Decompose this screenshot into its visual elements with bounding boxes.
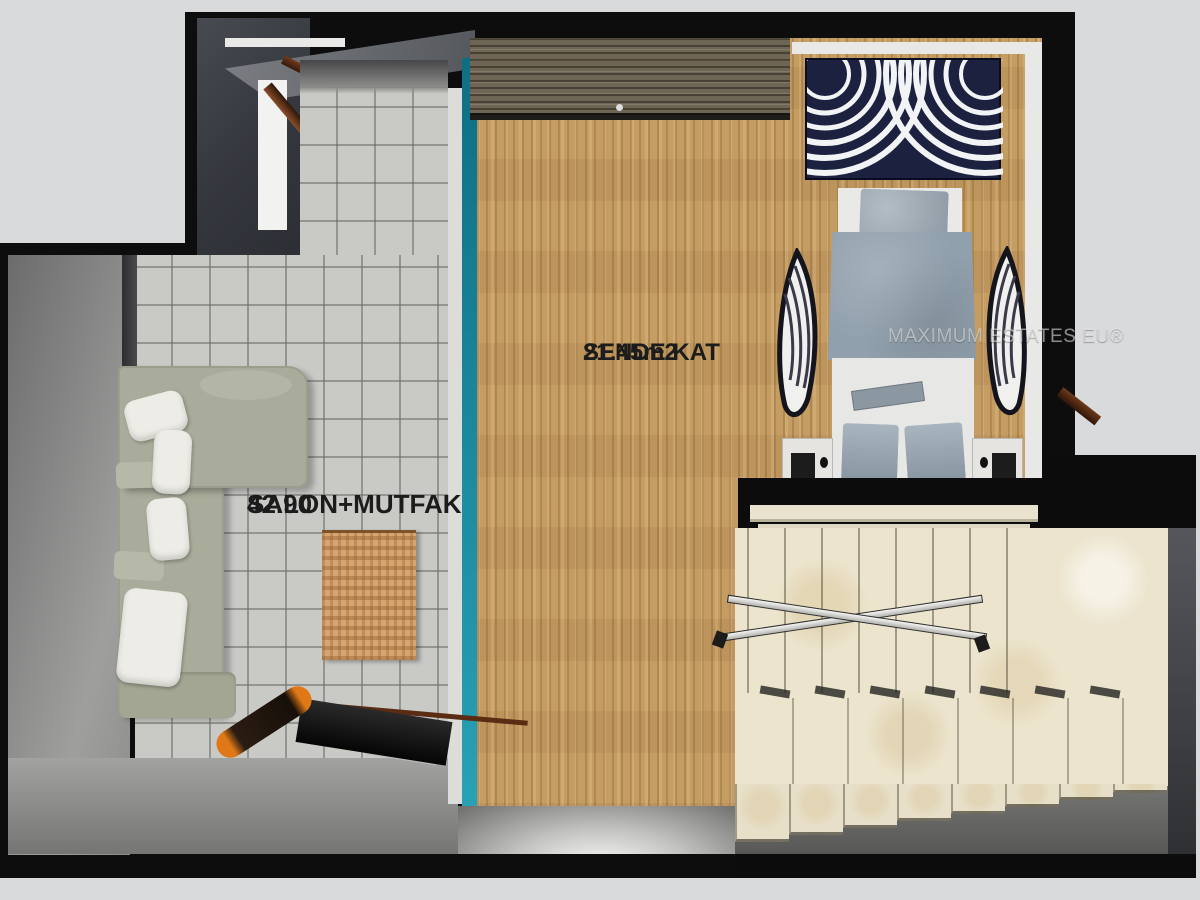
sofa-cushion-icon bbox=[115, 587, 189, 688]
salon-ceiling-shadow bbox=[300, 60, 448, 94]
nightstand-drawer bbox=[992, 453, 1016, 480]
lower-terrace bbox=[8, 758, 458, 854]
stair-tread-line bbox=[858, 528, 860, 693]
stair-slab-line bbox=[847, 698, 849, 786]
stair-slab-line bbox=[1012, 698, 1014, 786]
stair-bottom-step bbox=[789, 784, 843, 835]
headboard-art-panel-icon bbox=[805, 58, 1001, 180]
accent-chair-left-icon bbox=[770, 248, 826, 426]
stair-bottom-step bbox=[951, 784, 1005, 814]
floorplan-canvas: SALON+MUTFAK 42.90 SENDE KAT 21.45m2 MAX… bbox=[0, 0, 1200, 900]
watermark-text: MAXIMUM ESTATES EU® bbox=[888, 326, 1124, 348]
salon-tile-floor-upper bbox=[300, 88, 448, 258]
stair-bottom-step bbox=[1113, 784, 1167, 793]
wardrobe-icon bbox=[470, 38, 790, 120]
sofa-cushion-icon bbox=[151, 429, 192, 495]
sofa-cushion-icon bbox=[145, 496, 190, 561]
nightstand-lamp-icon bbox=[820, 457, 828, 468]
bed-foot-pillow-left bbox=[841, 423, 899, 483]
stair-bottom-step bbox=[735, 784, 789, 842]
stair-nose-shadow bbox=[925, 685, 956, 698]
stair-tread-line bbox=[1006, 528, 1008, 693]
stair-hall-side-wall bbox=[1164, 528, 1196, 854]
stair-nose-shadow bbox=[1035, 685, 1066, 698]
bed-foot-pillow-right bbox=[904, 422, 966, 484]
partition-wall-white bbox=[448, 88, 462, 804]
loft-bottom-wall-top bbox=[458, 806, 742, 854]
stair-nose-shadow bbox=[1090, 685, 1121, 698]
bedroom-wall-top bbox=[792, 42, 1042, 54]
entrance-sill bbox=[225, 38, 345, 47]
stair-bottom-step bbox=[897, 784, 951, 821]
stair-landing-ledge bbox=[750, 505, 1038, 522]
entrance-hall bbox=[197, 18, 310, 255]
stair-bottom-step bbox=[1005, 784, 1059, 807]
stair-slab-line bbox=[1122, 698, 1124, 786]
stair-slab-line bbox=[792, 698, 794, 786]
stair-bottom-step bbox=[1059, 784, 1113, 800]
wardrobe-handle-icon bbox=[616, 104, 623, 111]
staircase-icon bbox=[735, 528, 1168, 786]
stair-slab-line bbox=[902, 698, 904, 786]
teal-accent-wall bbox=[462, 58, 477, 840]
stair-tread-line bbox=[969, 528, 971, 693]
loft-room-area: 21.45m2 bbox=[583, 335, 678, 371]
nightstand-lamp-icon bbox=[980, 457, 988, 468]
area-rug-icon bbox=[322, 530, 416, 660]
staircase-upper-treads bbox=[735, 528, 1168, 786]
art-panel-arcs bbox=[807, 60, 1003, 182]
nightstand-drawer bbox=[791, 453, 815, 480]
salon-room-area: 42.90 bbox=[247, 482, 312, 526]
stair-tread-line bbox=[932, 528, 934, 693]
stair-bottom-step bbox=[843, 784, 897, 828]
stair-slab-line bbox=[957, 698, 959, 786]
stair-tread-line bbox=[747, 528, 749, 693]
bed-pillow-icon bbox=[859, 188, 949, 237]
stair-nose-shadow bbox=[815, 685, 846, 698]
sofa-armrest bbox=[200, 370, 292, 400]
stair-slab-line bbox=[1067, 698, 1069, 786]
